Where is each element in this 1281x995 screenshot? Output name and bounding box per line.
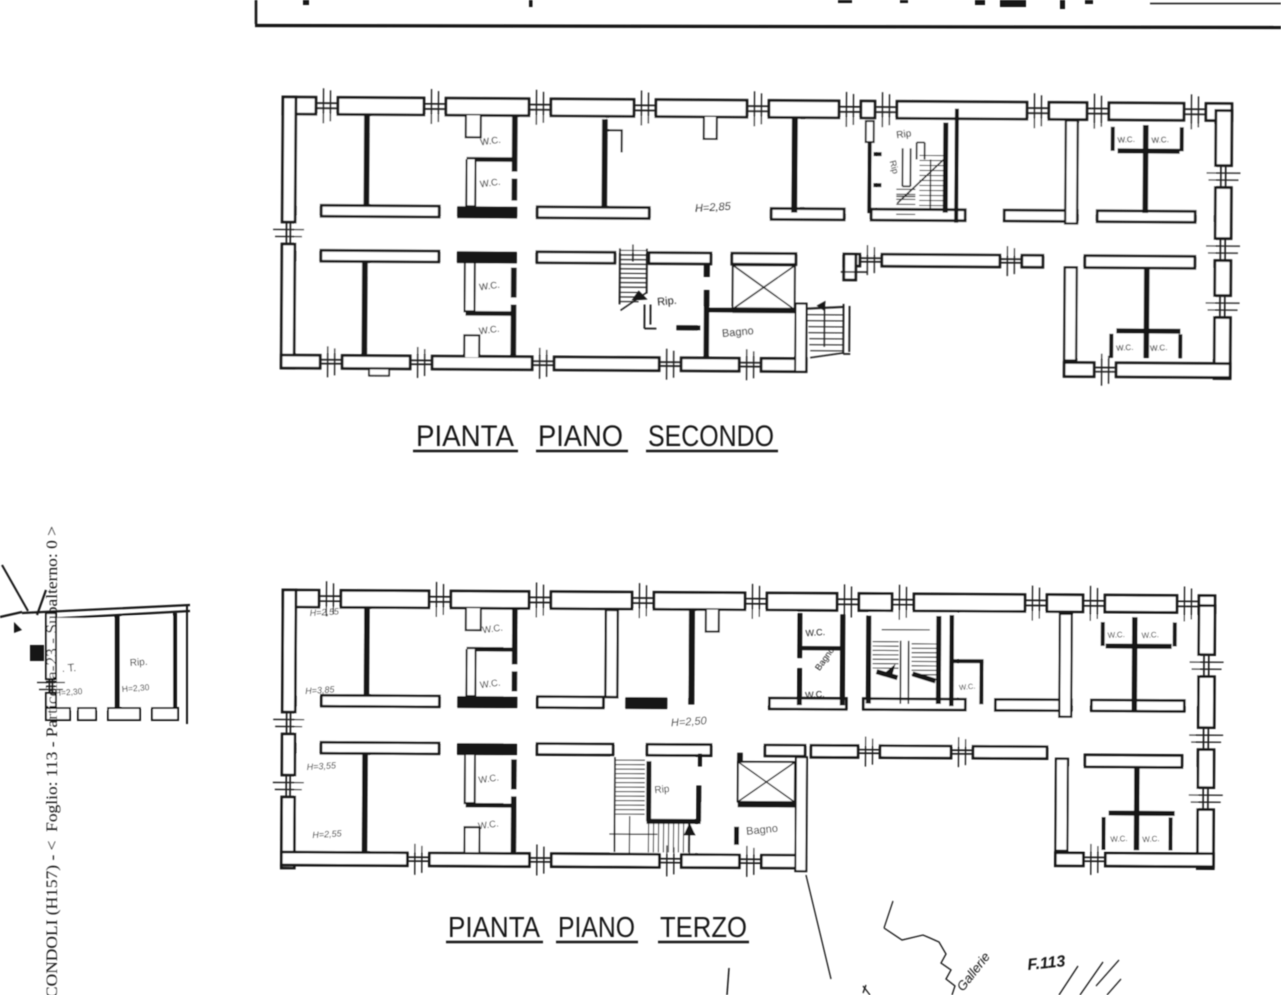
- svg-text:TERZO: TERZO: [660, 912, 747, 944]
- svg-text:W.C.: W.C.: [805, 627, 825, 638]
- svg-text:Rip.: Rip.: [657, 295, 678, 309]
- svg-text:H=2,85: H=2,85: [695, 201, 732, 215]
- svg-text:W.C.: W.C.: [1117, 135, 1135, 145]
- svg-text:W.C.: W.C.: [1151, 135, 1169, 145]
- svg-text:Rip: Rip: [654, 784, 670, 796]
- svg-text:. T.: . T.: [61, 662, 76, 675]
- svg-text:Rip: Rip: [896, 128, 913, 141]
- svg-text:W.C.: W.C.: [1116, 343, 1134, 353]
- svg-text:W.C.: W.C.: [1107, 630, 1125, 640]
- svg-text:H=3,85: H=3,85: [305, 684, 336, 696]
- svg-text:H=2,55: H=2,55: [309, 606, 340, 618]
- svg-text:H=3,55: H=3,55: [306, 760, 337, 772]
- svg-text:W.C.: W.C.: [1142, 834, 1160, 844]
- svg-text:H=2,30: H=2,30: [121, 682, 150, 694]
- svg-text:PIANTA: PIANTA: [416, 420, 514, 453]
- svg-text:W.C.: W.C.: [1141, 630, 1159, 640]
- svg-text:PIANO: PIANO: [558, 912, 635, 944]
- svg-text:CONDOLI (H157) - < Foglio: 11: CONDOLI (H157) - < Foglio: 113 - Partice…: [44, 526, 61, 995]
- svg-text:W.C.: W.C.: [1150, 343, 1168, 353]
- svg-text:W.C.: W.C.: [959, 682, 976, 693]
- svg-text:PIANTA: PIANTA: [448, 912, 541, 944]
- svg-text:PIANO: PIANO: [538, 420, 623, 453]
- svg-text:W.C.: W.C.: [805, 689, 825, 700]
- svg-text:H=2,50: H=2,50: [671, 715, 708, 729]
- svg-text:Rip.: Rip.: [129, 657, 148, 669]
- svg-text:H=2,55: H=2,55: [312, 828, 343, 840]
- svg-text:W.C.: W.C.: [1110, 834, 1128, 844]
- svg-text:SECONDO: SECONDO: [648, 420, 774, 453]
